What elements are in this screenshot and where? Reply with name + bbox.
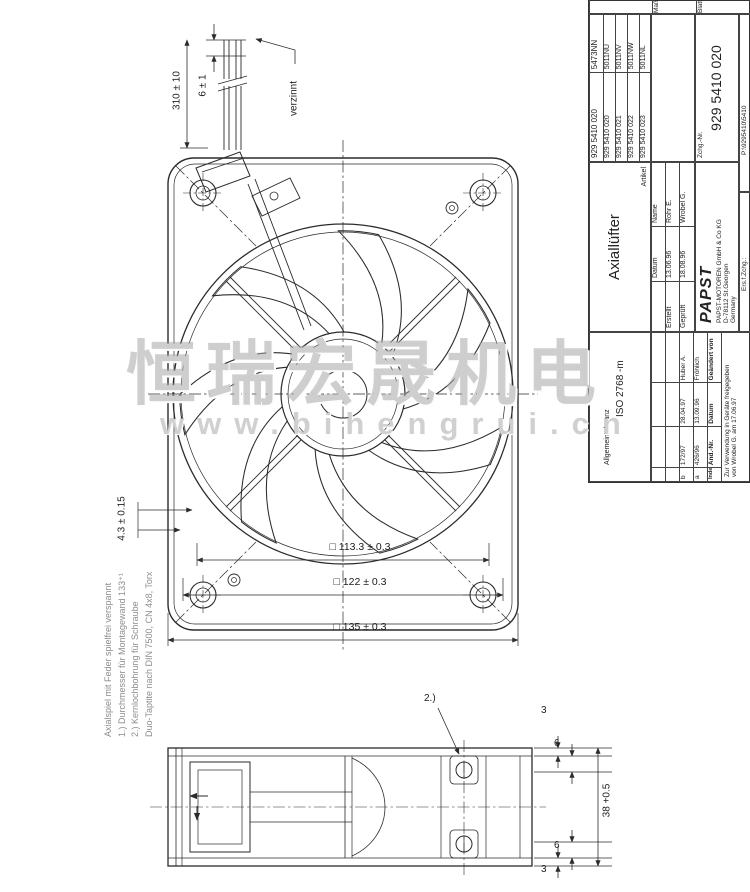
sheet-cell: Blatt xyxy=(696,0,750,13)
variant-num: 929 5410 021 xyxy=(616,72,628,161)
dim-side-top-depth: 6 xyxy=(554,738,560,749)
drawing-number: 929 5410 020 xyxy=(704,15,724,161)
company-logo: PAPST xyxy=(696,163,716,331)
dim-square-122: □ 122 ± 0.3 xyxy=(295,576,425,588)
note-ref-2: 2.) xyxy=(424,693,436,704)
dim-side-bottom-lip: 3 xyxy=(541,864,547,875)
release-note: Zur Verwendung in Geräte freigegeben von… xyxy=(722,333,738,481)
edge-strip: Maßstab Blatt xyxy=(589,0,750,14)
variant-code: 5011NV xyxy=(616,15,628,72)
note-line-4: Duo-Taptite nach DIN 7500, CN 4x8, Torx xyxy=(143,545,157,737)
company-address-2: D-78112 St.Georgen xyxy=(723,163,730,331)
note-line-2: 1.) Durchmesser für Montagewand 133⁺¹ xyxy=(116,545,130,737)
scale-cell: Maßstab xyxy=(652,0,697,13)
side-view xyxy=(150,708,612,878)
dim-wire-tin: 6 ± 1 xyxy=(198,66,209,106)
note-line-3: 2.) Kernlochbohrung für Schraube xyxy=(129,545,143,737)
revision-row-b: b 172/97 28.04.97 Huber A. xyxy=(680,333,694,481)
dim-flange-thickness: 4.3 ± 0.15 xyxy=(117,483,128,555)
variant-header-code: 5473NN xyxy=(590,15,604,72)
lead-wires xyxy=(206,40,247,150)
drawing-number-cell: Zchg.-Nr. 929 5410 020 xyxy=(695,14,739,162)
col-name: Name xyxy=(652,163,666,226)
dim-side-height: 38 +0.5 xyxy=(602,773,613,829)
dim-side-top-lip: 3 xyxy=(541,705,547,716)
drawing-number-label: Zchg.-Nr. xyxy=(696,15,704,161)
article-name: Axiallüfter xyxy=(590,163,623,331)
variant-code: 5011NU xyxy=(604,15,616,72)
direction-arrows xyxy=(190,796,208,820)
note-line-1: Axialspiel mit Feder spielfrei verspannt xyxy=(102,545,116,737)
company-block: PAPST PAPST-MOTOREN GmbH & Co KG D-78112… xyxy=(695,162,739,332)
dim-square-135: □ 135 ± 0.3 xyxy=(295,621,425,633)
terminal-block xyxy=(196,152,311,330)
article-cell: Axiallüfter Artikel xyxy=(589,162,651,332)
sign-row-geprueft: Geprüft 18.08.96 Wrobel G. xyxy=(680,163,694,331)
variant-code: 5011NW xyxy=(628,15,640,72)
variant-header-num: 929 5410 020 xyxy=(590,72,604,161)
revision-row-a: a 426/96 13.09.96 Fröhlich xyxy=(694,333,708,481)
company-address-3: Germany xyxy=(730,163,737,331)
empty-cell xyxy=(651,14,695,162)
dim-wire-length: 310 ± 10 xyxy=(172,53,183,129)
file-path-cell: P:\9295410\5410 xyxy=(739,14,750,192)
variant-num: 929 5410 020 xyxy=(604,72,616,161)
revision-header-row: Index Änd.-Nr. Datum Geändert von xyxy=(708,333,722,481)
side-centerlines xyxy=(150,740,546,876)
watermark-chinese: 恒瑞宏晟机电 xyxy=(126,318,606,419)
dim-square-113: □ 113.3 ± 0.3 xyxy=(295,541,425,553)
sign-row-erstellt: Erstellt 13.06.96 Rohr E. xyxy=(666,163,680,331)
drawing-notes: Axialspiel mit Feder spielfrei verspannt… xyxy=(102,545,160,737)
company-address-1: PAPST-MOTOREN GmbH & Co KG xyxy=(716,163,723,331)
label-verzinnt: verzinnt xyxy=(289,67,300,131)
variant-table: 929 5410 020 5473NN 929 5410 020 5011NU … xyxy=(589,14,651,162)
article-label: Artikel xyxy=(641,167,648,186)
col-datum: Datum xyxy=(652,226,666,281)
dim-side-bottom-depth: 6 xyxy=(554,840,560,851)
variant-num: 929 5410 022 xyxy=(628,72,640,161)
revision-table: b 172/97 28.04.97 Huber A. a 426/96 13.0… xyxy=(651,332,750,482)
ersatz-cell: Ers.f.Zchg.: xyxy=(739,192,750,332)
signature-table: Datum Name Erstellt 13.06.96 Rohr E. Gep… xyxy=(651,162,695,332)
technical-drawing-sheet: 恒瑞宏晟机电 www.bihengrui.cn 310 ± 10 6 ± 1 v… xyxy=(0,0,750,892)
watermark-url: www.bihengrui.cn xyxy=(160,406,634,442)
